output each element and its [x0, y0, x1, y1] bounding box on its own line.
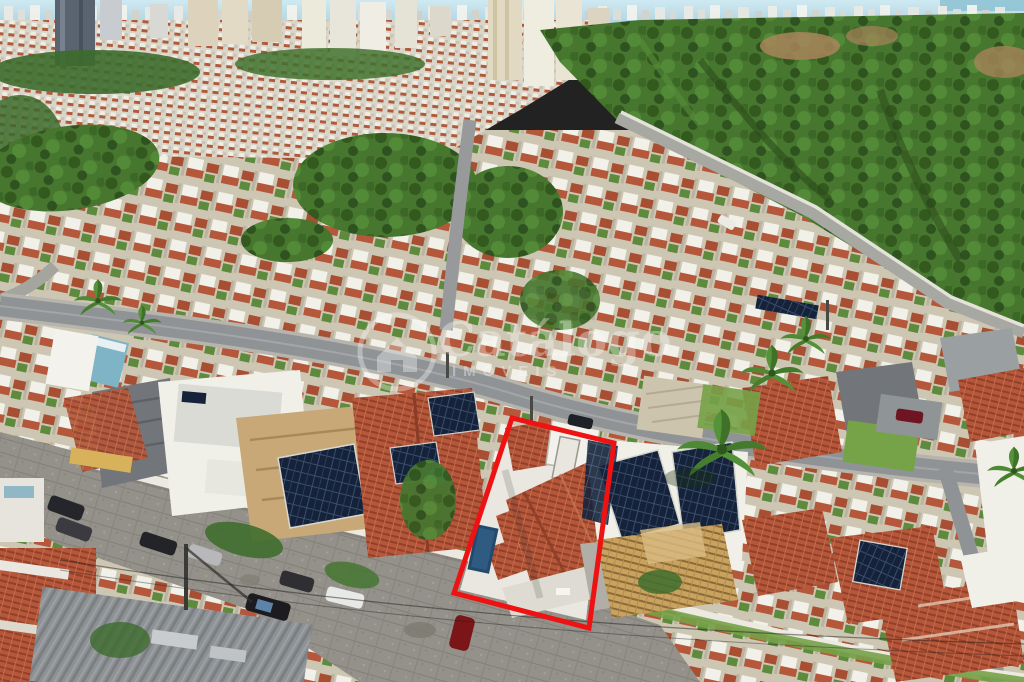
- watermark-brand-text: Catálogo: [438, 313, 671, 368]
- solar-array: [853, 540, 908, 590]
- solar-array: [278, 444, 366, 528]
- tan-solar-house: [236, 406, 374, 542]
- watermark-subtitle-text: IMÓVEIS: [452, 362, 564, 380]
- solar-array: [428, 392, 480, 436]
- aerial-photo: Catálogo IMÓVEIS: [0, 0, 1024, 682]
